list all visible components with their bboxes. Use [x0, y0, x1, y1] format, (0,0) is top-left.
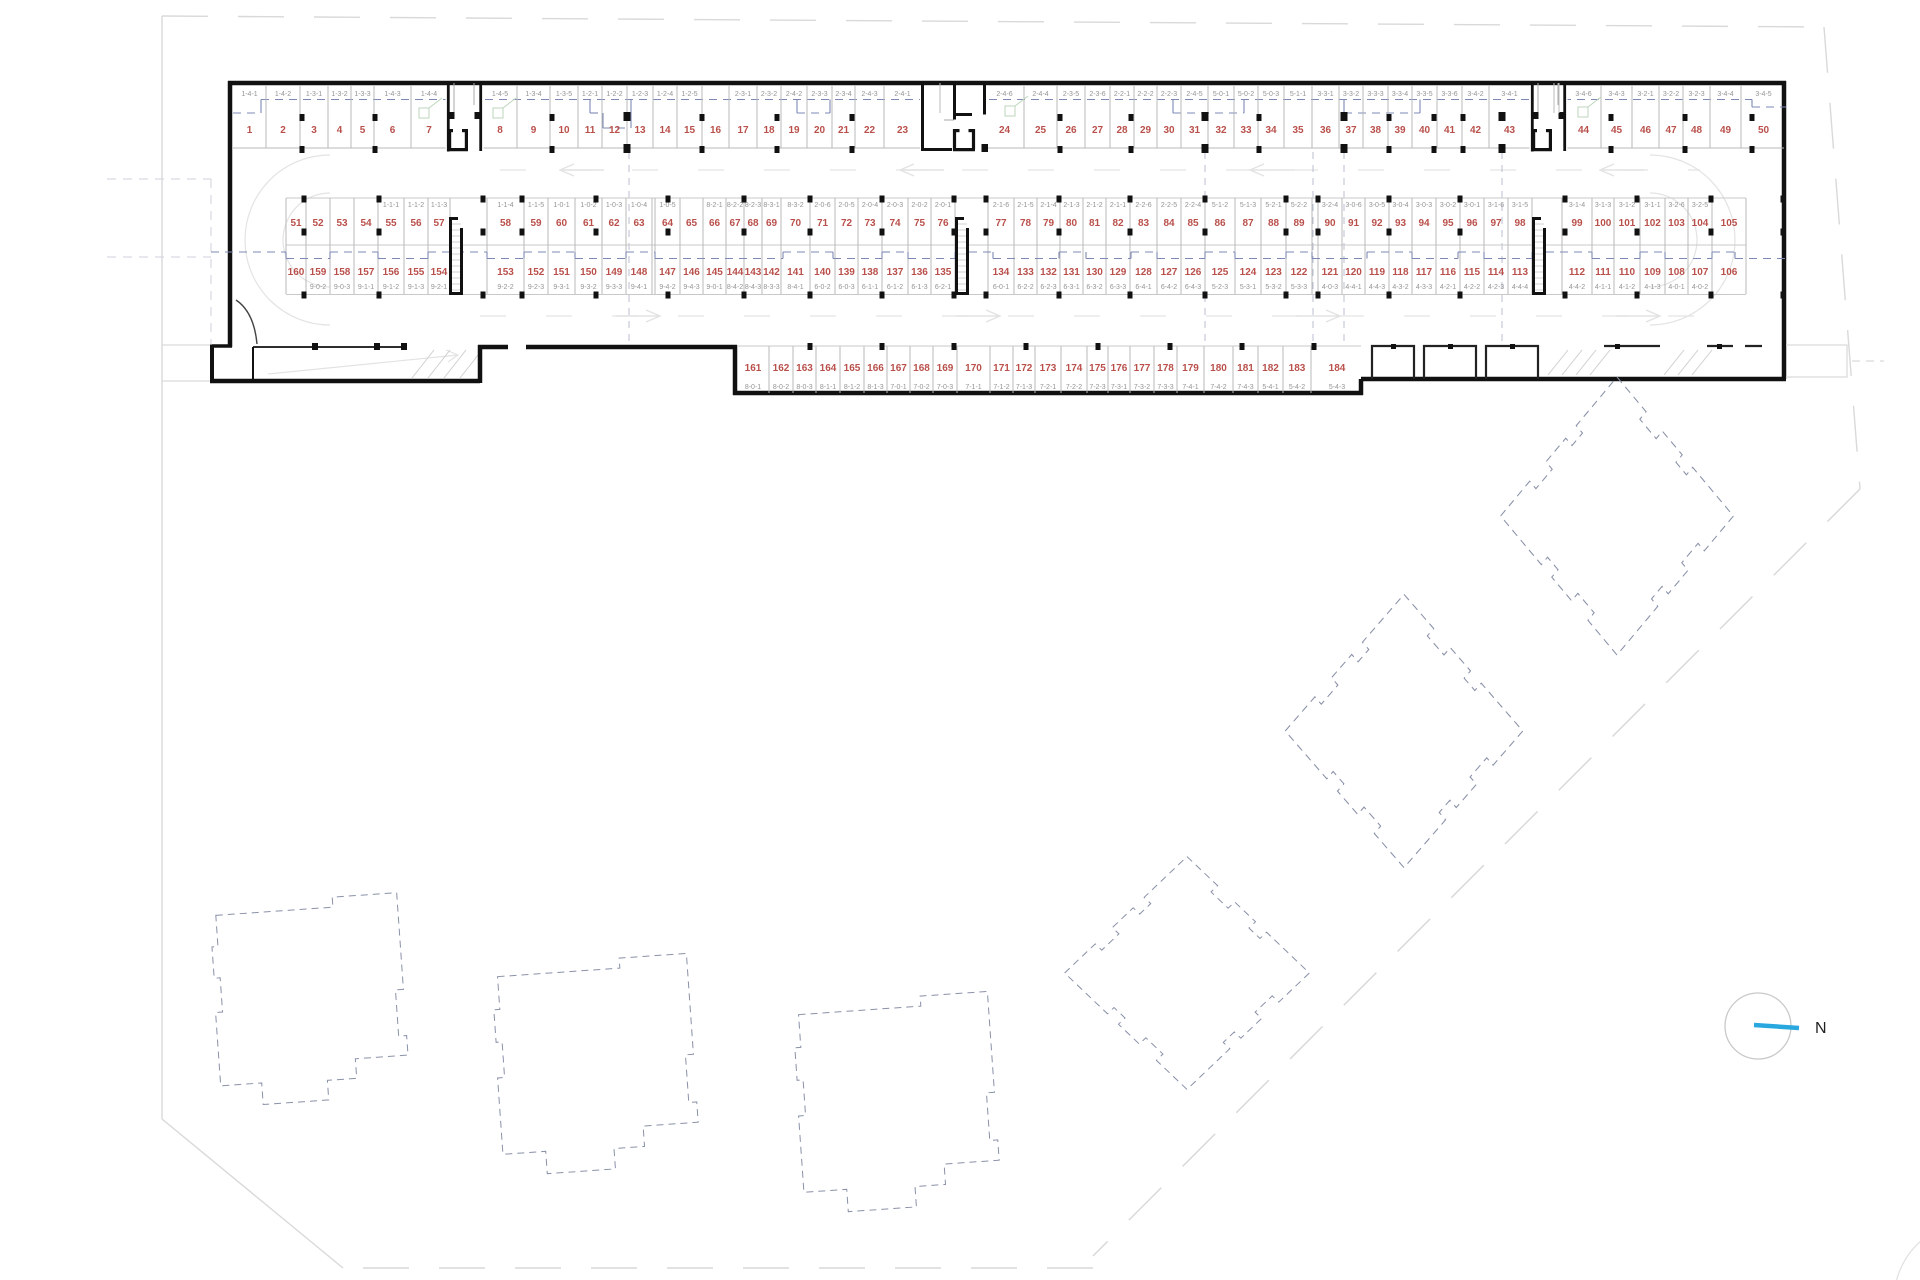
svg-text:4-4-2: 4-4-2	[1569, 284, 1585, 291]
svg-text:130: 130	[1086, 267, 1103, 278]
svg-text:1-0-4: 1-0-4	[631, 202, 647, 209]
svg-text:9-1-2: 9-1-2	[383, 284, 399, 291]
svg-text:122: 122	[1291, 267, 1308, 278]
svg-text:106: 106	[1721, 267, 1738, 278]
svg-text:N: N	[1815, 1020, 1827, 1037]
svg-text:81: 81	[1089, 218, 1101, 229]
svg-text:68: 68	[747, 218, 759, 229]
svg-text:62: 62	[608, 218, 620, 229]
svg-text:7-2-2: 7-2-2	[1066, 384, 1082, 391]
svg-text:163: 163	[796, 363, 813, 374]
svg-text:160: 160	[288, 267, 305, 278]
svg-text:4-0-1: 4-0-1	[1668, 284, 1684, 291]
svg-text:9-3-1: 9-3-1	[553, 284, 569, 291]
svg-text:8-2-1: 8-2-1	[706, 202, 722, 209]
svg-text:89: 89	[1293, 218, 1305, 229]
svg-text:46: 46	[1640, 125, 1652, 136]
svg-text:9-1-3: 9-1-3	[408, 284, 424, 291]
svg-text:9-1-1: 9-1-1	[358, 284, 374, 291]
svg-text:5-4-2: 5-4-2	[1289, 384, 1305, 391]
svg-text:153: 153	[497, 267, 514, 278]
svg-text:1-4-3: 1-4-3	[384, 91, 400, 98]
svg-text:167: 167	[890, 363, 907, 374]
svg-text:41: 41	[1444, 125, 1456, 136]
svg-text:112: 112	[1569, 267, 1586, 278]
svg-text:73: 73	[864, 218, 876, 229]
svg-text:179: 179	[1182, 363, 1199, 374]
svg-text:3-3-4: 3-3-4	[1392, 91, 1408, 98]
svg-text:148: 148	[631, 267, 648, 278]
svg-text:5-1-1: 5-1-1	[1290, 91, 1306, 98]
svg-text:58: 58	[500, 218, 512, 229]
svg-text:141: 141	[787, 267, 804, 278]
svg-text:3-0-2: 3-0-2	[1440, 202, 1456, 209]
svg-text:7-3-3: 7-3-3	[1157, 384, 1173, 391]
svg-text:4-4-4: 4-4-4	[1512, 284, 1528, 291]
svg-text:137: 137	[887, 267, 904, 278]
svg-text:115: 115	[1464, 267, 1481, 278]
svg-text:111: 111	[1595, 267, 1611, 278]
svg-text:7-1-1: 7-1-1	[965, 384, 981, 391]
svg-text:10: 10	[558, 125, 570, 136]
svg-text:4-4-3: 4-4-3	[1369, 284, 1385, 291]
svg-text:133: 133	[1017, 267, 1034, 278]
svg-text:127: 127	[1161, 267, 1178, 278]
svg-text:9-2-1: 9-2-1	[431, 284, 447, 291]
svg-text:3: 3	[311, 125, 317, 136]
svg-text:5-0-1: 5-0-1	[1213, 91, 1229, 98]
svg-text:1-2-4: 1-2-4	[657, 91, 673, 98]
svg-text:6-1-2: 6-1-2	[887, 284, 903, 291]
svg-text:4-1-3: 4-1-3	[1644, 284, 1660, 291]
svg-text:40: 40	[1419, 125, 1431, 136]
svg-text:77: 77	[995, 218, 1007, 229]
svg-text:3-4-3: 3-4-3	[1608, 91, 1624, 98]
svg-text:3-2-6: 3-2-6	[1668, 202, 1684, 209]
svg-text:2-4-1: 2-4-1	[894, 91, 910, 98]
svg-text:2-3-6: 2-3-6	[1089, 91, 1105, 98]
svg-text:3-0-6: 3-0-6	[1345, 202, 1361, 209]
svg-text:7-4-3: 7-4-3	[1237, 384, 1253, 391]
svg-text:181: 181	[1237, 363, 1254, 374]
svg-text:1-0-3: 1-0-3	[606, 202, 622, 209]
svg-text:5-1-2: 5-1-2	[1212, 202, 1228, 209]
svg-text:1-4-2: 1-4-2	[275, 91, 291, 98]
svg-text:1-0-5: 1-0-5	[659, 202, 675, 209]
svg-text:8: 8	[497, 125, 503, 136]
svg-text:7-2-1: 7-2-1	[1040, 384, 1056, 391]
svg-text:7-3-2: 7-3-2	[1134, 384, 1150, 391]
svg-text:80: 80	[1066, 218, 1078, 229]
svg-text:4-4-1: 4-4-1	[1345, 284, 1361, 291]
svg-text:6-3-2: 6-3-2	[1086, 284, 1102, 291]
svg-text:178: 178	[1157, 363, 1174, 374]
svg-text:7-0-2: 7-0-2	[913, 384, 929, 391]
svg-text:5-3-2: 5-3-2	[1265, 284, 1281, 291]
svg-text:6-1-3: 6-1-3	[911, 284, 927, 291]
svg-text:6-4-1: 6-4-1	[1135, 284, 1151, 291]
svg-text:7-0-3: 7-0-3	[937, 384, 953, 391]
svg-text:7-4-2: 7-4-2	[1210, 384, 1226, 391]
svg-text:78: 78	[1020, 218, 1032, 229]
svg-text:102: 102	[1644, 218, 1661, 229]
svg-text:21: 21	[838, 125, 850, 136]
svg-text:29: 29	[1140, 125, 1152, 136]
svg-text:5-0-3: 5-0-3	[1263, 91, 1279, 98]
svg-text:3-4-4: 3-4-4	[1717, 91, 1733, 98]
svg-text:59: 59	[530, 218, 542, 229]
svg-text:65: 65	[686, 218, 698, 229]
svg-text:2-2-5: 2-2-5	[1161, 202, 1177, 209]
svg-text:70: 70	[790, 218, 802, 229]
svg-text:123: 123	[1265, 267, 1282, 278]
svg-text:3-4-1: 3-4-1	[1501, 91, 1517, 98]
svg-text:2-1-1: 2-1-1	[1110, 202, 1126, 209]
svg-text:7: 7	[426, 125, 432, 136]
svg-text:3-0-3: 3-0-3	[1416, 202, 1432, 209]
svg-text:5-2-2: 5-2-2	[1291, 202, 1307, 209]
svg-text:3-2-4: 3-2-4	[1322, 202, 1338, 209]
svg-text:64: 64	[662, 218, 674, 229]
svg-text:51: 51	[290, 218, 302, 229]
svg-text:110: 110	[1619, 267, 1636, 278]
svg-text:1: 1	[247, 125, 253, 136]
svg-text:37: 37	[1345, 125, 1357, 136]
svg-text:103: 103	[1668, 218, 1685, 229]
svg-text:105: 105	[1721, 218, 1738, 229]
svg-text:6-0-2: 6-0-2	[814, 284, 830, 291]
svg-text:107: 107	[1692, 267, 1709, 278]
svg-text:129: 129	[1110, 267, 1127, 278]
svg-text:9-3-3: 9-3-3	[606, 284, 622, 291]
svg-text:1-2-2: 1-2-2	[606, 91, 622, 98]
svg-text:4-0-2: 4-0-2	[1692, 284, 1708, 291]
svg-text:3-1-5: 3-1-5	[1512, 202, 1528, 209]
svg-text:1-2-1: 1-2-1	[582, 91, 598, 98]
svg-text:82: 82	[1112, 218, 1124, 229]
svg-text:7-0-1: 7-0-1	[890, 384, 906, 391]
svg-text:23: 23	[897, 125, 909, 136]
svg-text:4-0-3: 4-0-3	[1322, 284, 1338, 291]
svg-text:3-3-5: 3-3-5	[1416, 91, 1432, 98]
svg-text:22: 22	[864, 125, 876, 136]
svg-text:158: 158	[334, 267, 351, 278]
svg-text:182: 182	[1262, 363, 1279, 374]
svg-text:35: 35	[1292, 125, 1304, 136]
svg-text:172: 172	[1016, 363, 1033, 374]
svg-text:38: 38	[1370, 125, 1382, 136]
svg-text:128: 128	[1135, 267, 1152, 278]
svg-text:170: 170	[965, 363, 982, 374]
svg-text:145: 145	[706, 267, 723, 278]
svg-text:12: 12	[609, 125, 621, 136]
svg-text:4-2-3: 4-2-3	[1488, 284, 1504, 291]
svg-text:39: 39	[1394, 125, 1406, 136]
svg-text:3-3-3: 3-3-3	[1367, 91, 1383, 98]
svg-text:6-3-1: 6-3-1	[1063, 284, 1079, 291]
svg-text:3-1-3: 3-1-3	[1595, 202, 1611, 209]
svg-text:97: 97	[1490, 218, 1502, 229]
svg-text:94: 94	[1418, 218, 1430, 229]
svg-text:3-4-2: 3-4-2	[1467, 91, 1483, 98]
svg-text:2-3-5: 2-3-5	[1063, 91, 1079, 98]
svg-text:7-4-1: 7-4-1	[1182, 384, 1198, 391]
svg-text:6-0-3: 6-0-3	[838, 284, 854, 291]
svg-text:1-1-4: 1-1-4	[497, 202, 513, 209]
svg-text:143: 143	[745, 267, 762, 278]
svg-text:151: 151	[553, 267, 570, 278]
svg-text:175: 175	[1089, 363, 1106, 374]
svg-text:20: 20	[814, 125, 826, 136]
svg-text:50: 50	[1758, 125, 1770, 136]
svg-text:9-4-3: 9-4-3	[683, 284, 699, 291]
svg-text:159: 159	[310, 267, 327, 278]
svg-text:9-0-3: 9-0-3	[334, 284, 350, 291]
svg-text:19: 19	[788, 125, 800, 136]
svg-text:9: 9	[531, 125, 537, 136]
svg-text:15: 15	[684, 125, 696, 136]
svg-text:91: 91	[1348, 218, 1360, 229]
svg-text:9-4-2: 9-4-2	[659, 284, 675, 291]
svg-text:9-0-2: 9-0-2	[310, 284, 326, 291]
svg-text:3-2-2: 3-2-2	[1663, 91, 1679, 98]
svg-text:166: 166	[867, 363, 884, 374]
svg-text:150: 150	[580, 267, 597, 278]
svg-text:168: 168	[913, 363, 930, 374]
svg-text:32: 32	[1215, 125, 1227, 136]
svg-text:2-0-1: 2-0-1	[935, 202, 951, 209]
svg-text:5-0-2: 5-0-2	[1238, 91, 1254, 98]
svg-text:4-1-1: 4-1-1	[1595, 284, 1611, 291]
svg-text:2: 2	[280, 125, 286, 136]
svg-text:8-2-2: 8-2-2	[727, 202, 743, 209]
svg-text:79: 79	[1043, 218, 1055, 229]
svg-text:177: 177	[1134, 363, 1151, 374]
svg-text:24: 24	[999, 125, 1011, 136]
svg-text:4-2-1: 4-2-1	[1440, 284, 1456, 291]
svg-text:125: 125	[1212, 267, 1229, 278]
svg-text:144: 144	[727, 267, 744, 278]
svg-text:5-4-3: 5-4-3	[1329, 384, 1345, 391]
svg-text:9-0-1: 9-0-1	[706, 284, 722, 291]
svg-text:98: 98	[1514, 218, 1526, 229]
svg-text:63: 63	[633, 218, 645, 229]
svg-text:4-3-2: 4-3-2	[1392, 284, 1408, 291]
svg-text:84: 84	[1163, 218, 1175, 229]
svg-text:6-4-2: 6-4-2	[1161, 284, 1177, 291]
svg-text:4-2-2: 4-2-2	[1464, 284, 1480, 291]
svg-text:93: 93	[1395, 218, 1407, 229]
svg-text:7-1-3: 7-1-3	[1016, 384, 1032, 391]
svg-text:67: 67	[729, 218, 741, 229]
svg-text:2-0-3: 2-0-3	[887, 202, 903, 209]
svg-text:55: 55	[385, 218, 397, 229]
svg-text:3-1-2: 3-1-2	[1619, 202, 1635, 209]
svg-text:8-0-3: 8-0-3	[796, 384, 812, 391]
svg-text:88: 88	[1268, 218, 1280, 229]
svg-text:169: 169	[937, 363, 954, 374]
svg-text:27: 27	[1092, 125, 1104, 136]
svg-text:8-4-2: 8-4-2	[727, 284, 743, 291]
svg-text:6-4-3: 6-4-3	[1185, 284, 1201, 291]
svg-text:53: 53	[336, 218, 348, 229]
svg-text:3-1-1: 3-1-1	[1644, 202, 1660, 209]
svg-text:109: 109	[1644, 267, 1661, 278]
svg-text:3-4-5: 3-4-5	[1755, 91, 1771, 98]
svg-text:2-3-2: 2-3-2	[761, 91, 777, 98]
svg-text:8-3-3: 8-3-3	[763, 284, 779, 291]
svg-text:86: 86	[1214, 218, 1226, 229]
svg-text:36: 36	[1320, 125, 1332, 136]
svg-text:47: 47	[1665, 125, 1677, 136]
svg-text:6-3-3: 6-3-3	[1110, 284, 1126, 291]
svg-text:42: 42	[1470, 125, 1482, 136]
svg-text:1-3-1: 1-3-1	[306, 91, 322, 98]
svg-text:2-1-2: 2-1-2	[1086, 202, 1102, 209]
svg-text:87: 87	[1242, 218, 1254, 229]
svg-text:126: 126	[1185, 267, 1202, 278]
svg-text:113: 113	[1512, 267, 1529, 278]
svg-text:147: 147	[659, 267, 676, 278]
svg-text:54: 54	[360, 218, 372, 229]
svg-text:56: 56	[410, 218, 422, 229]
svg-text:1-0-2: 1-0-2	[580, 202, 596, 209]
svg-text:2-4-6: 2-4-6	[996, 91, 1012, 98]
svg-text:90: 90	[1324, 218, 1336, 229]
svg-text:2-0-6: 2-0-6	[814, 202, 830, 209]
svg-text:8-1-2: 8-1-2	[844, 384, 860, 391]
svg-text:131: 131	[1063, 267, 1080, 278]
svg-text:92: 92	[1371, 218, 1383, 229]
svg-text:3-3-2: 3-3-2	[1343, 91, 1359, 98]
svg-text:9-4-1: 9-4-1	[631, 284, 647, 291]
svg-text:52: 52	[312, 218, 324, 229]
svg-text:3-1-6: 3-1-6	[1488, 202, 1504, 209]
svg-text:3-0-1: 3-0-1	[1464, 202, 1480, 209]
svg-text:4: 4	[337, 125, 343, 136]
svg-text:9-3-2: 9-3-2	[580, 284, 596, 291]
svg-text:1-4-5: 1-4-5	[492, 91, 508, 98]
svg-text:146: 146	[683, 267, 700, 278]
svg-text:2-4-2: 2-4-2	[786, 91, 802, 98]
svg-text:28: 28	[1116, 125, 1128, 136]
svg-text:1-2-3: 1-2-3	[632, 91, 648, 98]
svg-text:1-3-4: 1-3-4	[525, 91, 541, 98]
svg-text:1-3-5: 1-3-5	[556, 91, 572, 98]
svg-text:71: 71	[817, 218, 829, 229]
svg-text:4-1-2: 4-1-2	[1619, 284, 1635, 291]
svg-text:8-2-3: 8-2-3	[745, 202, 761, 209]
svg-text:157: 157	[358, 267, 375, 278]
svg-text:30: 30	[1163, 125, 1175, 136]
svg-text:6-1-1: 6-1-1	[862, 284, 878, 291]
svg-text:1-1-5: 1-1-5	[528, 202, 544, 209]
svg-text:75: 75	[914, 218, 926, 229]
svg-text:11: 11	[585, 125, 596, 136]
svg-text:2-2-6: 2-2-6	[1135, 202, 1151, 209]
svg-text:2-1-5: 2-1-5	[1017, 202, 1033, 209]
svg-text:183: 183	[1289, 363, 1306, 374]
svg-text:5-1-3: 5-1-3	[1240, 202, 1256, 209]
svg-text:139: 139	[838, 267, 855, 278]
svg-text:8-4-1: 8-4-1	[787, 284, 803, 291]
svg-text:162: 162	[773, 363, 790, 374]
svg-text:85: 85	[1187, 218, 1199, 229]
svg-text:48: 48	[1691, 125, 1703, 136]
svg-text:3-3-6: 3-3-6	[1441, 91, 1457, 98]
svg-text:5-4-1: 5-4-1	[1262, 384, 1278, 391]
svg-text:96: 96	[1466, 218, 1478, 229]
svg-text:1-1-1: 1-1-1	[383, 202, 399, 209]
svg-text:136: 136	[911, 267, 928, 278]
svg-text:57: 57	[433, 218, 445, 229]
svg-text:149: 149	[606, 267, 623, 278]
svg-text:1-3-3: 1-3-3	[354, 91, 370, 98]
svg-text:5-2-1: 5-2-1	[1265, 202, 1281, 209]
svg-text:2-2-1: 2-2-1	[1114, 91, 1130, 98]
svg-text:49: 49	[1720, 125, 1732, 136]
svg-text:171: 171	[993, 363, 1010, 374]
svg-text:17: 17	[737, 125, 749, 136]
svg-text:134: 134	[993, 267, 1010, 278]
svg-text:132: 132	[1040, 267, 1057, 278]
svg-text:95: 95	[1442, 218, 1454, 229]
svg-text:8-3-1: 8-3-1	[763, 202, 779, 209]
svg-text:8-1-3: 8-1-3	[867, 384, 883, 391]
svg-text:124: 124	[1240, 267, 1257, 278]
svg-text:2-2-3: 2-2-3	[1161, 91, 1177, 98]
svg-text:1-4-1: 1-4-1	[241, 91, 257, 98]
svg-text:140: 140	[814, 267, 831, 278]
svg-text:2-4-4: 2-4-4	[1032, 91, 1048, 98]
svg-text:5-2-3: 5-2-3	[1212, 284, 1228, 291]
svg-text:3-4-6: 3-4-6	[1575, 91, 1591, 98]
svg-text:2-1-6: 2-1-6	[993, 202, 1009, 209]
svg-text:7-2-3: 7-2-3	[1089, 384, 1105, 391]
svg-text:16: 16	[710, 125, 722, 136]
svg-text:6-2-2: 6-2-2	[1017, 284, 1033, 291]
svg-text:1-2-5: 1-2-5	[681, 91, 697, 98]
svg-text:142: 142	[763, 267, 780, 278]
svg-text:8-4-3: 8-4-3	[745, 284, 761, 291]
svg-text:173: 173	[1040, 363, 1057, 374]
svg-text:7-1-2: 7-1-2	[993, 384, 1009, 391]
svg-text:8-0-2: 8-0-2	[773, 384, 789, 391]
svg-text:121: 121	[1322, 267, 1339, 278]
svg-text:2-4-3: 2-4-3	[861, 91, 877, 98]
svg-text:69: 69	[766, 218, 778, 229]
svg-text:3-3-1: 3-3-1	[1317, 91, 1333, 98]
svg-text:7-3-1: 7-3-1	[1111, 384, 1127, 391]
svg-text:34: 34	[1265, 125, 1277, 136]
svg-text:6-0-1: 6-0-1	[993, 284, 1009, 291]
svg-text:2-0-5: 2-0-5	[838, 202, 854, 209]
svg-text:101: 101	[1619, 218, 1636, 229]
svg-text:100: 100	[1595, 218, 1612, 229]
svg-text:117: 117	[1416, 267, 1433, 278]
svg-text:2-0-4: 2-0-4	[862, 202, 878, 209]
svg-text:72: 72	[841, 218, 853, 229]
svg-text:76: 76	[937, 218, 949, 229]
svg-text:176: 176	[1111, 363, 1128, 374]
svg-text:161: 161	[745, 363, 762, 374]
svg-text:154: 154	[431, 267, 448, 278]
svg-text:3-2-1: 3-2-1	[1637, 91, 1653, 98]
svg-text:3-0-4: 3-0-4	[1392, 202, 1408, 209]
svg-text:108: 108	[1668, 267, 1685, 278]
svg-text:26: 26	[1065, 125, 1077, 136]
svg-text:138: 138	[862, 267, 879, 278]
